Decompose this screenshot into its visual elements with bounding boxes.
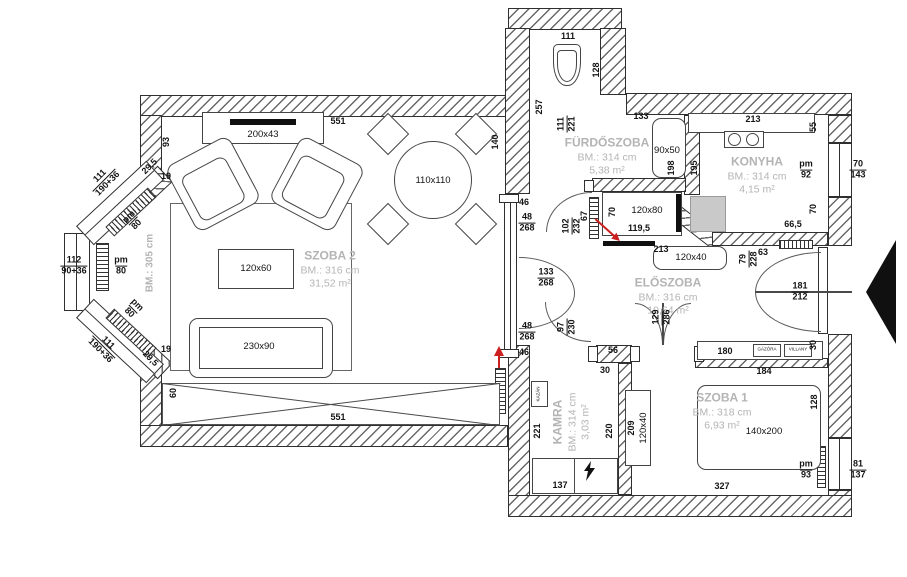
room-label-konyha: KONYHA BM.: 314 cm 4,15 m² [728,155,787,198]
room-label-szoba1: SZOBA 1 BM.: 318 cm 6,93 m² [693,391,752,434]
room-label-kamra: KAMRA BM.: 314 cm 3,03 m² [551,393,594,452]
door-post [630,346,640,362]
dim-56: 56 [608,346,618,356]
room-height: BM.: 316 cm [301,264,360,278]
dim-213-hall: 213 [653,245,668,255]
dim-66-5: 66,5 [784,220,802,230]
hall-cabinet-bar [676,194,681,232]
dim-46-top: 46 [519,198,529,208]
radiator-bay-middle [96,243,109,291]
kitchen-window [828,143,852,197]
room-area: 3,03 m² [580,393,594,452]
dim-551-top: 551 [330,117,345,127]
dim-198: 198 [667,160,677,175]
dim-19-top: 19 [161,172,171,182]
dim-180: 180 [717,347,732,357]
floor-plan: SZOBA 2 BM.: 316 cm 31,52 m² FÜRDŐSZOBA … [0,0,907,577]
room-name: FÜRDŐSZOBA [565,136,650,152]
lbl-villany: VILLANY [789,348,808,353]
armchair-seat [279,153,347,222]
kamra-counter-divider [574,458,575,494]
dim-195: 195 [690,160,700,175]
dim-213-kitchen: 213 [745,115,760,125]
room-name: SZOBA 2 [301,249,360,265]
dining-chair-3 [367,203,409,245]
wall-bathroom-east [600,28,626,95]
dim-60: 60 [169,388,179,398]
dim-111-221: 111221 [557,115,578,132]
lbl-coffee-table: 120x60 [240,264,271,274]
entry-door-arc-top [755,252,821,292]
dim-79-228: 79228 [739,250,760,267]
room-area: 31,52 m² [301,278,360,292]
dim-67: 67 [580,211,590,221]
room-area: 5,38 m² [565,165,650,179]
dim-48-268-bot: 48268 [518,322,535,343]
bm-bay: BM.: 305 cm [145,234,156,292]
wall-bottom-szoba2 [140,425,508,447]
armchair-seat [179,155,247,224]
dim-128-wc: 128 [592,62,602,77]
room-name: ELŐSZOBA [635,276,702,292]
dim-63: 63 [758,248,768,258]
dim-133-268: 133268 [537,268,554,289]
dim-30-entry: 30 [809,340,819,350]
room-name: KAMRA [551,393,567,452]
room-label-furdoszoba: FÜRDŐSZOBA BM.: 314 cm 5,38 m² [565,136,650,179]
door-post [584,180,594,192]
szoba1-window [828,438,852,490]
dim-111-wc: 111 [561,32,575,42]
lbl-gazora: GÁZÓRA [757,348,776,353]
wall-top-szoba2 [140,95,508,117]
radiator-entry [779,240,813,249]
dim-30-kamra: 30 [600,366,610,376]
room-height: BM.: 314 cm [565,151,650,165]
red-arrow-up [494,346,504,356]
wall-right-lower [828,334,852,438]
dim-129-286: 129286 [652,308,673,325]
room-height: BM.: 314 cm [566,393,580,452]
dim-551-bottom: 551 [330,413,345,423]
lbl-hall-bench: 120x40 [675,253,706,263]
dim-181-212: 181212 [791,282,808,303]
entrance-arrow [866,240,896,344]
room-height: BM.: 318 cm [693,406,752,420]
dim-48-268-top: 48268 [518,213,535,234]
lbl-shelf: 200x43 [247,130,278,140]
dim-bay-upper-pm: pm80 [121,209,145,233]
dim-119-5: 119,5 [628,224,650,234]
wall-bathroom-south [592,178,686,192]
lbl-tub: 90x50 [654,146,680,156]
shelf-bar [230,119,296,125]
dim-140: 140 [491,134,501,149]
room-area: 6,93 m² [693,420,752,434]
room-name: SZOBA 1 [693,391,752,407]
lbl-kazan: KAZÁN [537,386,542,401]
dim-128-szoba1: 128 [810,394,820,409]
lbl-sofa: 230x90 [243,342,274,352]
red-arrow-up-stem [498,356,500,368]
room-name: KONYHA [728,155,787,171]
wall-bathroom-west [505,28,530,194]
shoe-bar [603,241,655,246]
dim-97-230: 97230 [557,318,578,335]
dim-133-tub: 133 [633,112,648,122]
dim-bay-flat: 11290+36 [60,256,87,277]
sink-bowl-2 [746,133,759,146]
dim-46-bot: 46 [519,348,529,358]
wall-bottom [508,495,852,517]
room-height: BM.: 314 cm [728,170,787,184]
dim-93: 93 [162,137,172,147]
dim-bay-flat-pm: pm80 [114,256,128,277]
dim-184: 184 [756,367,771,377]
dim-81-137: 81137 [849,460,866,481]
dim-70-143: 70143 [849,160,866,181]
lbl-bed: 140x200 [746,427,782,437]
dim-327: 327 [714,482,729,492]
dim-70-kitchen: 70 [809,204,819,214]
room-label-szoba2: SZOBA 2 BM.: 316 cm 31,52 m² [301,249,360,292]
dim-pm92: pm92 [799,160,813,181]
glazed-partition [504,200,517,352]
lbl-hall-cabinet: 120x80 [631,206,662,216]
dim-70-hall: 70 [608,207,618,217]
dim-209: 209 [627,420,637,435]
dim-257: 257 [535,99,545,114]
entry-door-arc-bottom [755,292,821,332]
door-post [499,194,519,203]
lbl-wardrobe: 120x40 [639,412,649,443]
wall-kitchen-top [626,93,852,115]
dining-chair-4 [455,203,497,245]
dim-220: 220 [605,423,615,438]
door-post [588,346,598,362]
room-height: BM.: 316 cm [635,291,702,305]
dim-pm93: pm93 [799,460,813,481]
wall-right-upper [828,115,852,143]
dim-221: 221 [533,423,543,438]
dim-19-bot: 19 [161,345,171,355]
wall-right-mid [828,197,852,246]
dim-55: 55 [809,122,819,132]
dining-chair-1 [367,113,409,155]
lbl-table-round: 110x110 [415,176,450,186]
wall-top-bathroom [508,8,622,30]
wall-kamra-west [508,345,530,517]
sink-bowl-1 [728,133,741,146]
lightning-icon [583,461,596,481]
dim-137: 137 [552,481,567,491]
stove [690,196,726,232]
room-area: 4,15 m² [728,184,787,198]
